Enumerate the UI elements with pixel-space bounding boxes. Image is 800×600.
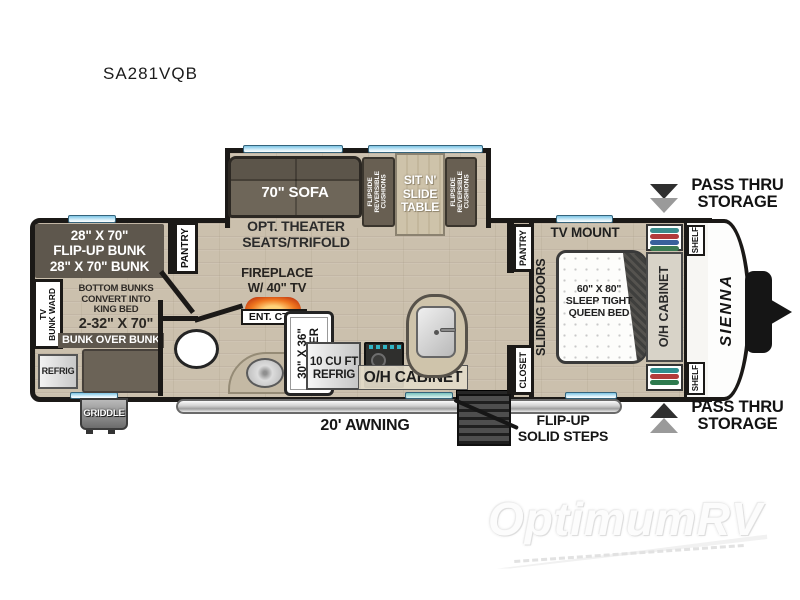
sink-faucet-icon	[440, 328, 456, 332]
cushions-right-label: FLIPSIDE REVERSIBLE CUSHIONS	[451, 171, 471, 213]
bath-wall-jog	[160, 316, 198, 321]
bedroom-pantry-label: PANTRY	[519, 230, 528, 266]
bunk-size-note: 2-32" X 70"	[66, 316, 166, 332]
griddle-foot-left	[86, 430, 93, 434]
arrow-up-icon	[650, 403, 678, 418]
shelf-bottom: SHELF	[687, 362, 705, 395]
dinette-table: SIT N' SLIDE TABLE	[395, 153, 445, 236]
clothes-item	[650, 374, 678, 379]
living-pantry-label: PANTRY	[181, 228, 192, 268]
window-kitchen-bottom	[405, 392, 453, 399]
wardrobe-clothes-bottom	[646, 364, 683, 391]
overbed-cabinet: O/H CABINET	[646, 252, 683, 362]
bunk-over-bunk-label: BUNK OVER BUNK	[62, 334, 160, 346]
tv-bunk-ward-label: TV BUNK WARD	[39, 288, 57, 341]
rear-refrig-label: REFRIG	[42, 366, 75, 376]
sink-drain-icon	[434, 330, 439, 335]
bunk-bench	[82, 349, 162, 393]
clothes-item	[650, 246, 678, 251]
watermark: OptimumRV	[488, 492, 788, 582]
page-title: SA281VQB	[103, 64, 198, 84]
window-bedroom-top	[556, 215, 613, 223]
brand-logo: SIENNA	[719, 274, 736, 346]
queen-bed-label: 60" X 80" SLEEP TIGHT QUEEN BED	[556, 284, 642, 319]
arrow-up-icon	[650, 418, 678, 433]
bedroom-closet: CLOSET	[513, 345, 534, 395]
kitchen-sink	[416, 306, 456, 358]
clothes-item	[650, 380, 678, 385]
clothes-item	[650, 234, 678, 239]
window-slide-dinette	[368, 145, 483, 153]
shelf-bottom-label: SHELF	[692, 365, 700, 391]
griddle: GRIDDLE	[80, 398, 128, 430]
shelf-top: SHELF	[687, 225, 705, 256]
arrow-down-icon	[650, 184, 678, 199]
griddle-label: GRIDDLE	[83, 409, 124, 420]
dinette-bench-right: FLIPSIDE REVERSIBLE CUSHIONS	[445, 157, 477, 227]
dinette-bench-left: FLIPSIDE REVERSIBLE CUSHIONS	[362, 157, 395, 227]
clothes-item	[650, 228, 678, 233]
shelf-top-label: SHELF	[692, 227, 700, 253]
rear-refrigerator: REFRIG	[38, 354, 78, 389]
theater-seats-note: OPT. THEATER SEATS/TRIFOLD	[226, 219, 366, 250]
pass-thru-storage-top: PASS THRU STORAGE	[680, 177, 795, 212]
hitch-coupler-icon	[768, 298, 792, 326]
steps-label: FLIP-UP SOLID STEPS	[512, 413, 614, 444]
bath-wall-vertical	[158, 300, 163, 396]
awning-label: 20' AWNING	[310, 417, 420, 435]
living-pantry: PANTRY	[174, 222, 198, 274]
toilet	[174, 329, 219, 369]
bunk-over-bunk-banner: BUNK OVER BUNK	[58, 333, 164, 348]
cushions-left-label: FLIPSIDE REVERSIBLE CUSHIONS	[368, 171, 388, 213]
window-bunk-top	[68, 215, 116, 223]
clothes-item	[650, 368, 678, 373]
bath-sink	[246, 358, 284, 388]
sofa: 70" SOFA	[228, 156, 362, 218]
clothes-item	[650, 240, 678, 245]
flip-up-bunk-label: 28" X 70" FLIP-UP BUNK 28" X 70" BUNK	[50, 228, 149, 273]
fireplace-note: FIREPLACE W/ 40" TV	[212, 266, 342, 295]
tv-mount-label: TV MOUNT	[545, 225, 625, 240]
bottom-bunks-note: BOTTOM BUNKS CONVERT INTO KING BED	[66, 284, 166, 316]
flip-up-bunk: 28" X 70" FLIP-UP BUNK 28" X 70" BUNK	[35, 224, 164, 278]
sofa-label: 70" SOFA	[231, 185, 359, 202]
griddle-foot-right	[108, 430, 115, 434]
floorplan-canvas: SA281VQB SIENNA 28" X 70" FLIP-UP BUNK 2…	[0, 0, 800, 600]
arrow-down-icon	[650, 198, 678, 213]
wardrobe-clothes-top	[646, 224, 683, 251]
bedroom-pantry: PANTRY	[513, 224, 534, 272]
watermark-road-dashes-icon	[514, 544, 744, 563]
overbed-cabinet-label: O/H CABINET	[658, 266, 671, 347]
front-cap: SIENNA	[704, 219, 751, 401]
pass-thru-storage-bottom: PASS THRU STORAGE	[680, 399, 795, 434]
window-slide-sofa	[243, 145, 343, 153]
window-bedroom-bottom	[565, 392, 617, 399]
sliding-doors-label: SLIDING DOORS	[535, 252, 548, 362]
dinette-table-label: SIT N' SLIDE TABLE	[401, 174, 439, 214]
stove-knobs-icon	[369, 345, 401, 349]
bedroom-closet-label: CLOSET	[519, 352, 528, 389]
